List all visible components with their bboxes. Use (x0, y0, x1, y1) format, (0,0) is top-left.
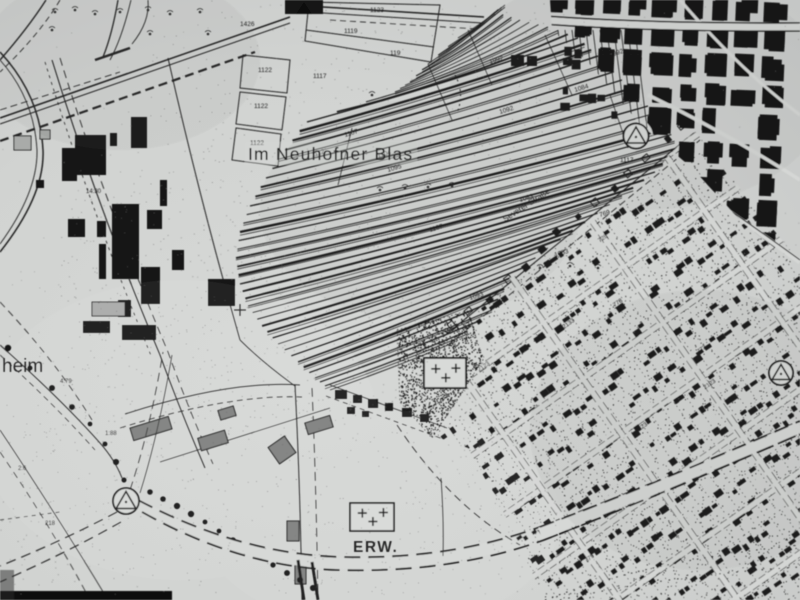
svg-text:14:30: 14:30 (86, 189, 102, 195)
svg-text:1117: 1117 (313, 73, 327, 80)
svg-text:119: 119 (390, 50, 401, 57)
svg-text:1122: 1122 (258, 67, 272, 74)
svg-text:1122: 1122 (254, 103, 268, 110)
svg-text:1119: 1119 (344, 28, 358, 35)
